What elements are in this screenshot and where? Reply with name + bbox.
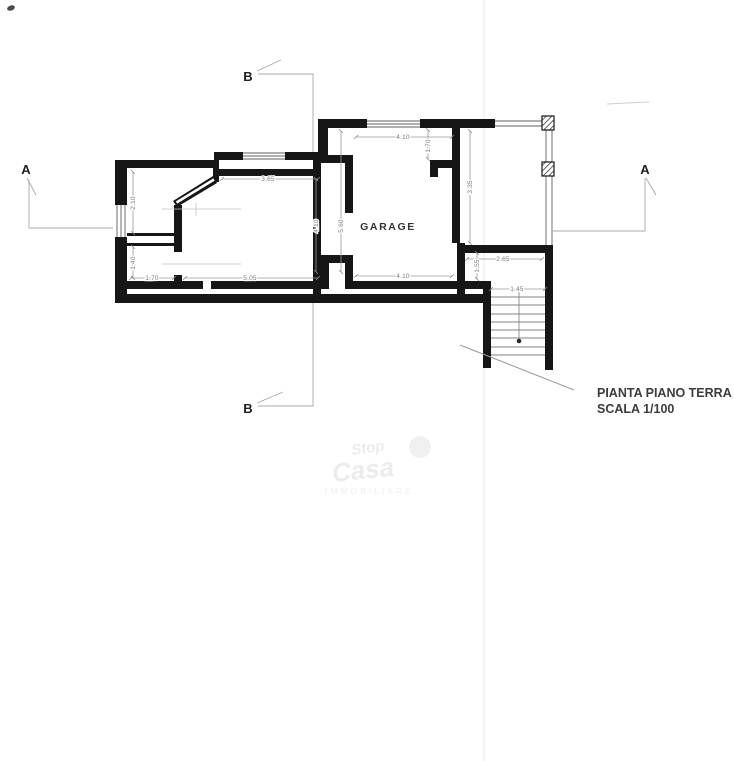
stair-direction-dot-icon — [517, 339, 522, 344]
dimension-label: 3.35 — [467, 180, 474, 194]
window-left-wall — [117, 205, 125, 237]
dimension-label: 5.05 — [243, 275, 257, 282]
garage-door-opening — [367, 121, 420, 127]
section-marker-b-top: B — [243, 69, 252, 84]
section-line-b-bottom — [257, 303, 313, 406]
dimension-label: 1.45 — [510, 286, 524, 293]
dimension-label: 5.60 — [338, 219, 345, 233]
section-marker-a-left: A — [21, 162, 31, 177]
dimension-label: 1.70 — [145, 275, 159, 282]
porch-edge-top — [495, 121, 542, 126]
section-line-a-right — [553, 178, 656, 231]
dimension-label: 1.55 — [474, 259, 481, 273]
plan-title: PIANTA PIANO TERRA — [597, 386, 732, 400]
scan-speck — [6, 4, 15, 11]
staircase — [460, 289, 574, 390]
hatched-pillar-icon — [542, 162, 554, 176]
dimension-label: 4.10 — [313, 219, 320, 233]
dimension-label: 1.70 — [425, 139, 432, 153]
watermark-logo: Stop Casa IMMOBILIARE — [325, 436, 431, 496]
window-top-wall — [243, 153, 285, 159]
dimension-lines — [131, 130, 545, 289]
dimension-label: 2.10 — [130, 196, 137, 210]
porch-edge-right — [546, 130, 552, 245]
dimension-label: 1.40 — [130, 256, 137, 270]
room-label-garage: GARAGE — [360, 221, 416, 233]
stair-break-line — [460, 345, 574, 390]
floor-plan-canvas: Stop Casa IMMOBILIARE — [0, 0, 734, 761]
title-block: PIANTA PIANO TERRA SCALA 1/100 — [597, 386, 732, 416]
stair-treads — [491, 297, 545, 355]
scan-artifacts — [6, 0, 649, 761]
scanned-floorplan-page: Stop Casa IMMOBILIARE — [0, 0, 734, 761]
watermark-word-main: Casa — [330, 452, 395, 488]
section-line-b-top — [257, 60, 313, 152]
diagonal-wall — [173, 176, 217, 207]
section-marker-b-bottom: B — [243, 401, 252, 416]
section-marker-a-right: A — [640, 162, 650, 177]
walls — [115, 119, 553, 370]
dimension-label: 3.65 — [261, 176, 275, 183]
dimension-label: 4.10 — [396, 134, 410, 141]
watermark-circle-icon — [409, 436, 431, 458]
hatched-pillar-icon — [542, 116, 554, 130]
section-line-a-left — [27, 178, 113, 228]
window-openings — [117, 121, 552, 245]
dimension-label: 2.65 — [496, 256, 510, 263]
watermark-word-bottom: IMMOBILIARE — [325, 486, 414, 496]
dimension-label: 4.10 — [396, 273, 410, 280]
plan-scale: SCALA 1/100 — [597, 402, 674, 416]
